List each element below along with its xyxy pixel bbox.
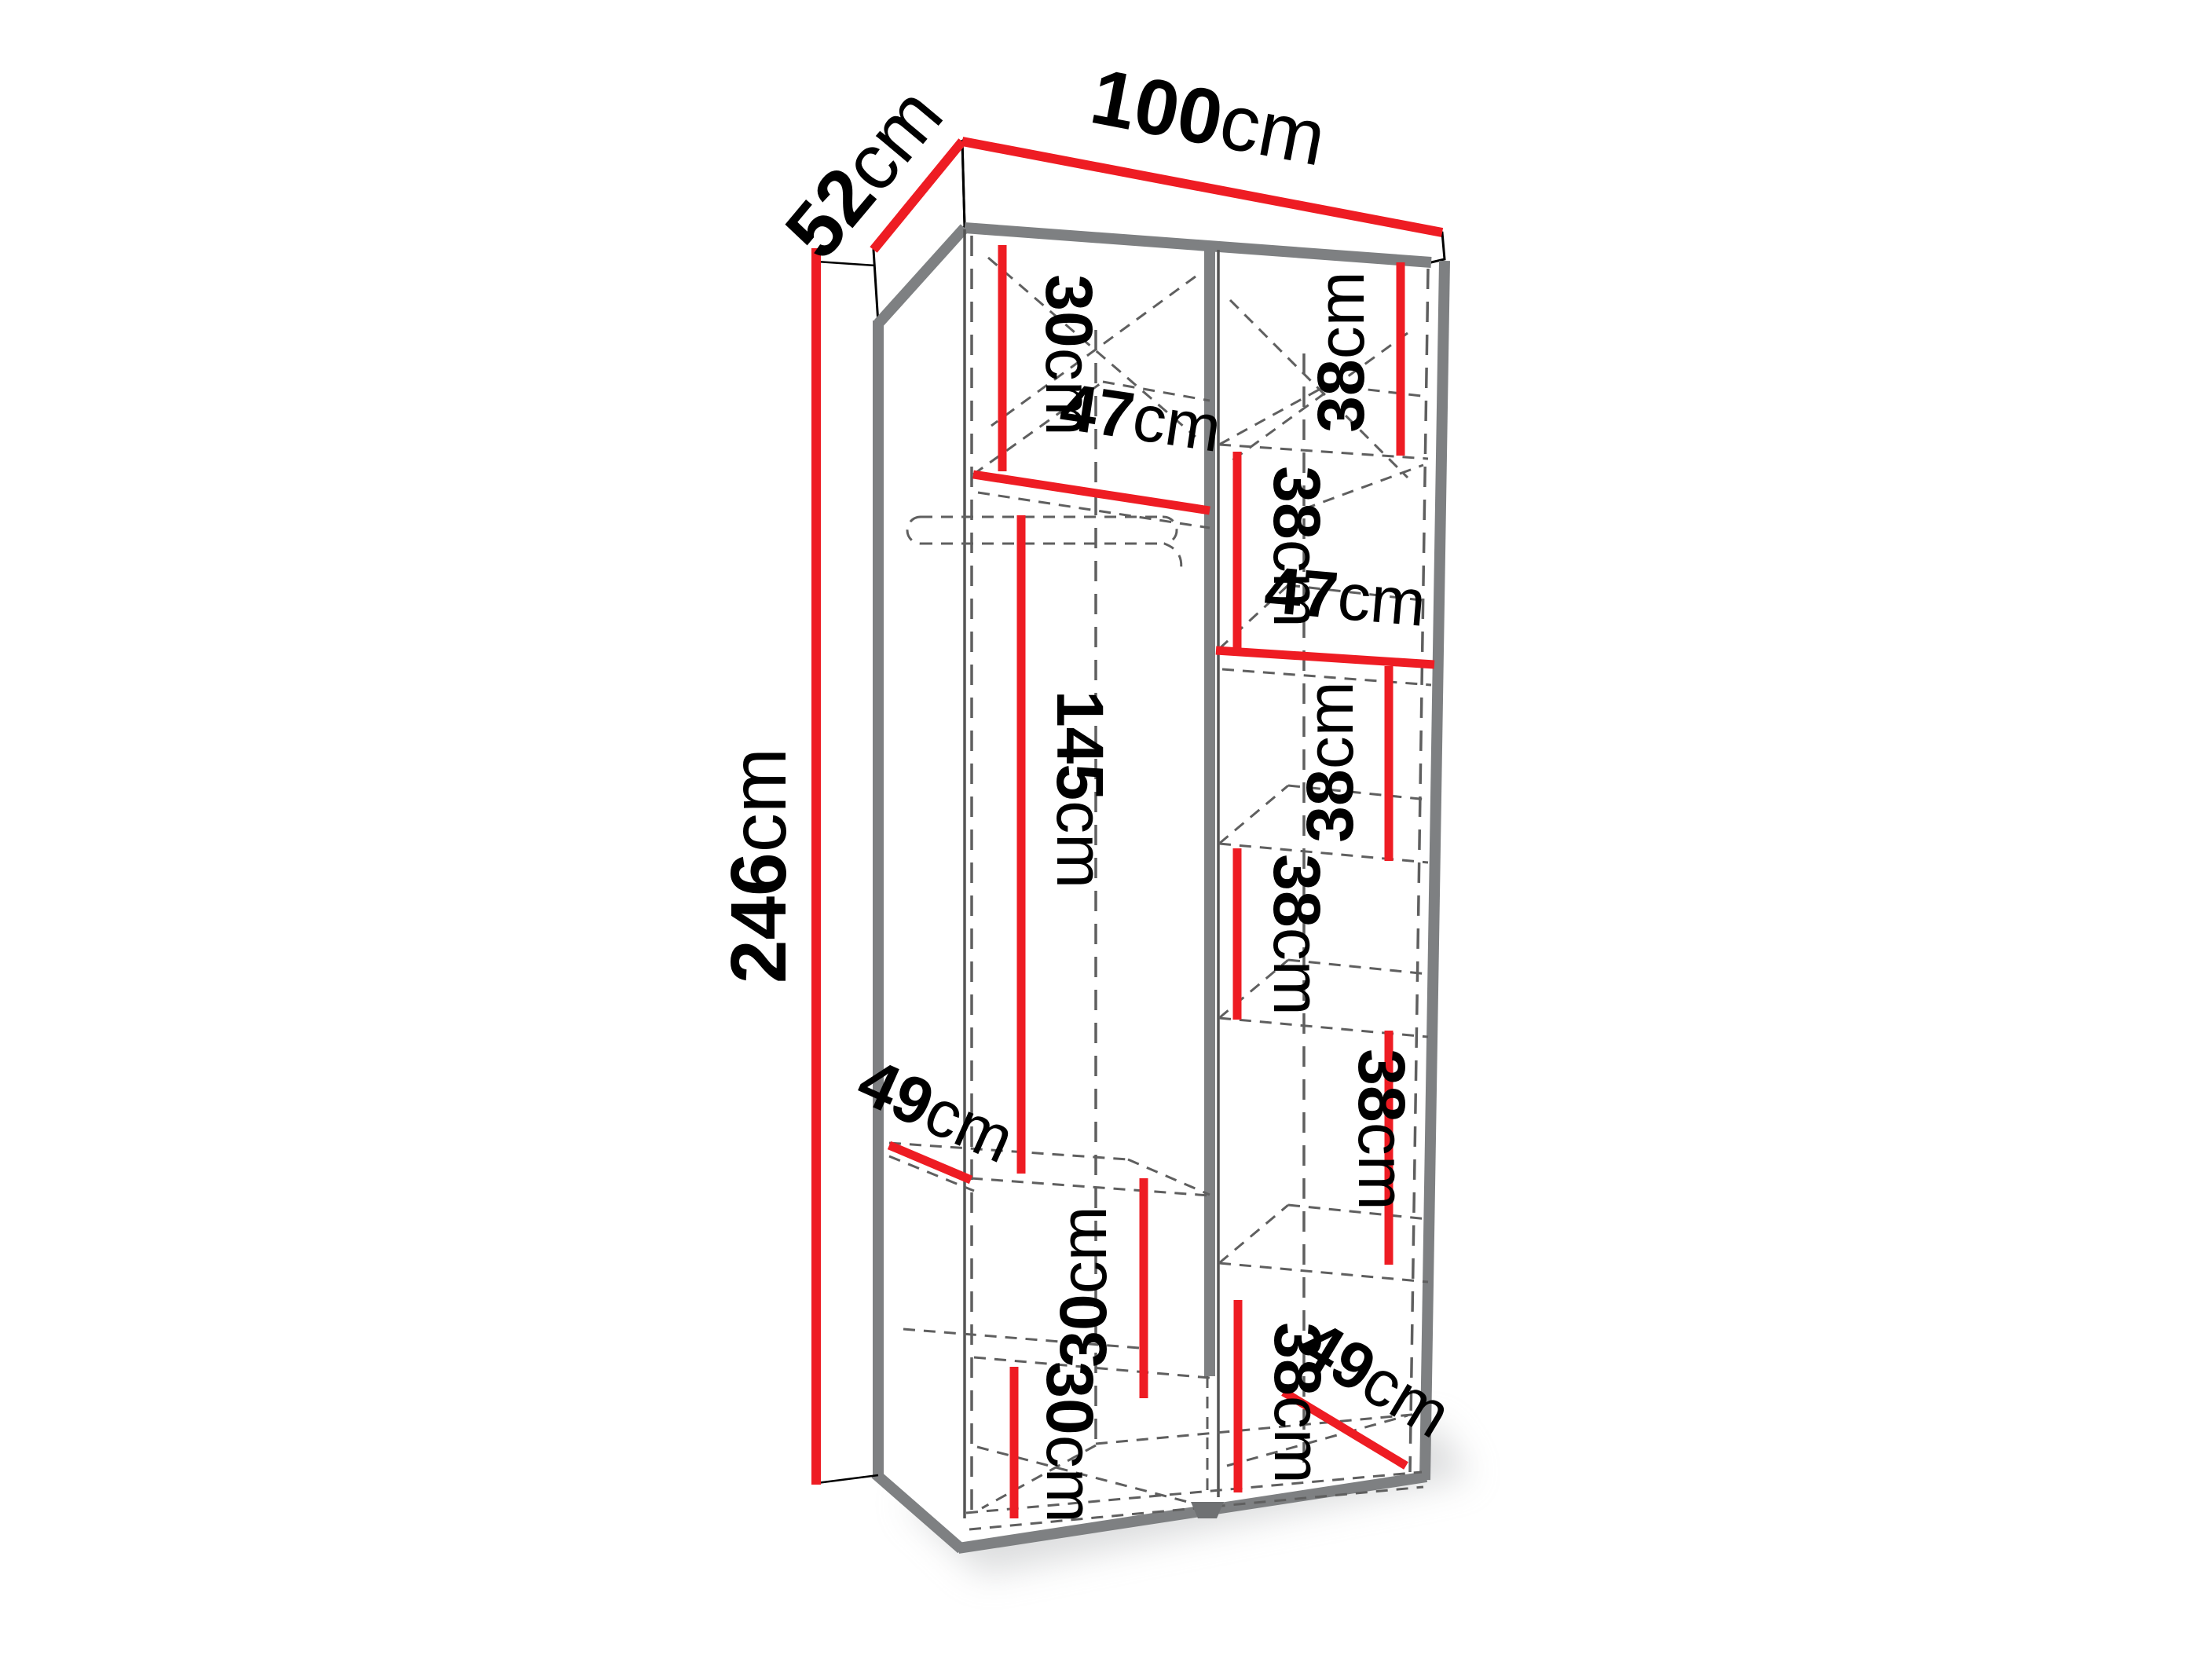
extension-lines	[817, 262, 878, 1483]
label-height-246: 246cm	[715, 748, 803, 983]
label-width-100: 100cm	[1084, 52, 1332, 182]
label-left-hang-145: 145cm	[1043, 690, 1117, 888]
label-left-bottom-30: 30cm	[1033, 1361, 1107, 1522]
diagram-canvas: 100cm 52cm 246cm 30cm 47cm 145cm 49cm 30…	[0, 0, 2212, 1659]
label-right-1-38: 38cm	[1304, 271, 1378, 432]
label-left-mid-30: 30cm	[1046, 1206, 1120, 1367]
label-right-4-38: 38cm	[1260, 854, 1334, 1015]
label-right-shelf-47: 47cm	[1262, 552, 1429, 640]
label-right-3-38: 38cm	[1293, 681, 1367, 842]
label-right-5-38: 38cm	[1345, 1049, 1419, 1210]
wardrobe-dimension-diagram: 100cm 52cm 246cm 30cm 47cm 145cm 49cm 30…	[0, 0, 2212, 1659]
